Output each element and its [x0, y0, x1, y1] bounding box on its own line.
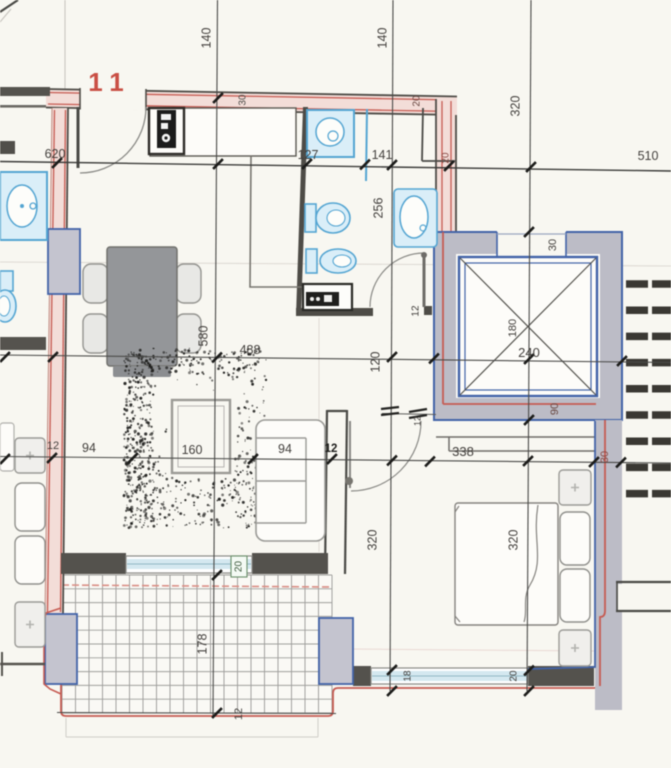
- svg-text:127: 127: [298, 148, 319, 162]
- svg-text:20: 20: [441, 152, 452, 164]
- svg-text:160: 160: [182, 443, 203, 457]
- svg-text:94: 94: [82, 441, 96, 455]
- svg-text:140: 140: [375, 28, 389, 49]
- svg-text:30: 30: [238, 94, 249, 106]
- svg-text:11: 11: [88, 67, 132, 97]
- svg-text:90: 90: [549, 403, 561, 415]
- svg-text:620: 620: [45, 147, 66, 161]
- svg-text:20: 20: [412, 95, 423, 107]
- svg-text:320: 320: [506, 530, 520, 551]
- svg-text:12: 12: [412, 416, 422, 426]
- svg-text:488: 488: [240, 343, 261, 357]
- svg-text:94: 94: [278, 442, 292, 456]
- svg-text:240: 240: [518, 345, 540, 360]
- svg-text:510: 510: [638, 149, 659, 163]
- svg-text:180: 180: [507, 319, 519, 337]
- svg-text:320: 320: [365, 530, 379, 551]
- svg-text:12: 12: [47, 440, 59, 452]
- svg-text:20: 20: [509, 670, 520, 682]
- svg-text:30: 30: [599, 451, 611, 463]
- svg-text:140: 140: [199, 28, 213, 49]
- svg-text:141: 141: [372, 148, 393, 162]
- svg-text:20: 20: [234, 561, 245, 573]
- svg-text:338: 338: [452, 444, 474, 459]
- svg-text:30: 30: [547, 239, 559, 251]
- svg-text:12: 12: [233, 708, 245, 720]
- svg-text:256: 256: [371, 198, 385, 219]
- svg-text:120: 120: [368, 352, 382, 373]
- svg-text:12: 12: [325, 443, 338, 455]
- svg-text:580: 580: [196, 326, 210, 347]
- svg-text:178: 178: [195, 634, 209, 655]
- svg-text:320: 320: [508, 96, 522, 117]
- svg-text:18: 18: [403, 670, 414, 682]
- svg-text:12: 12: [411, 305, 422, 317]
